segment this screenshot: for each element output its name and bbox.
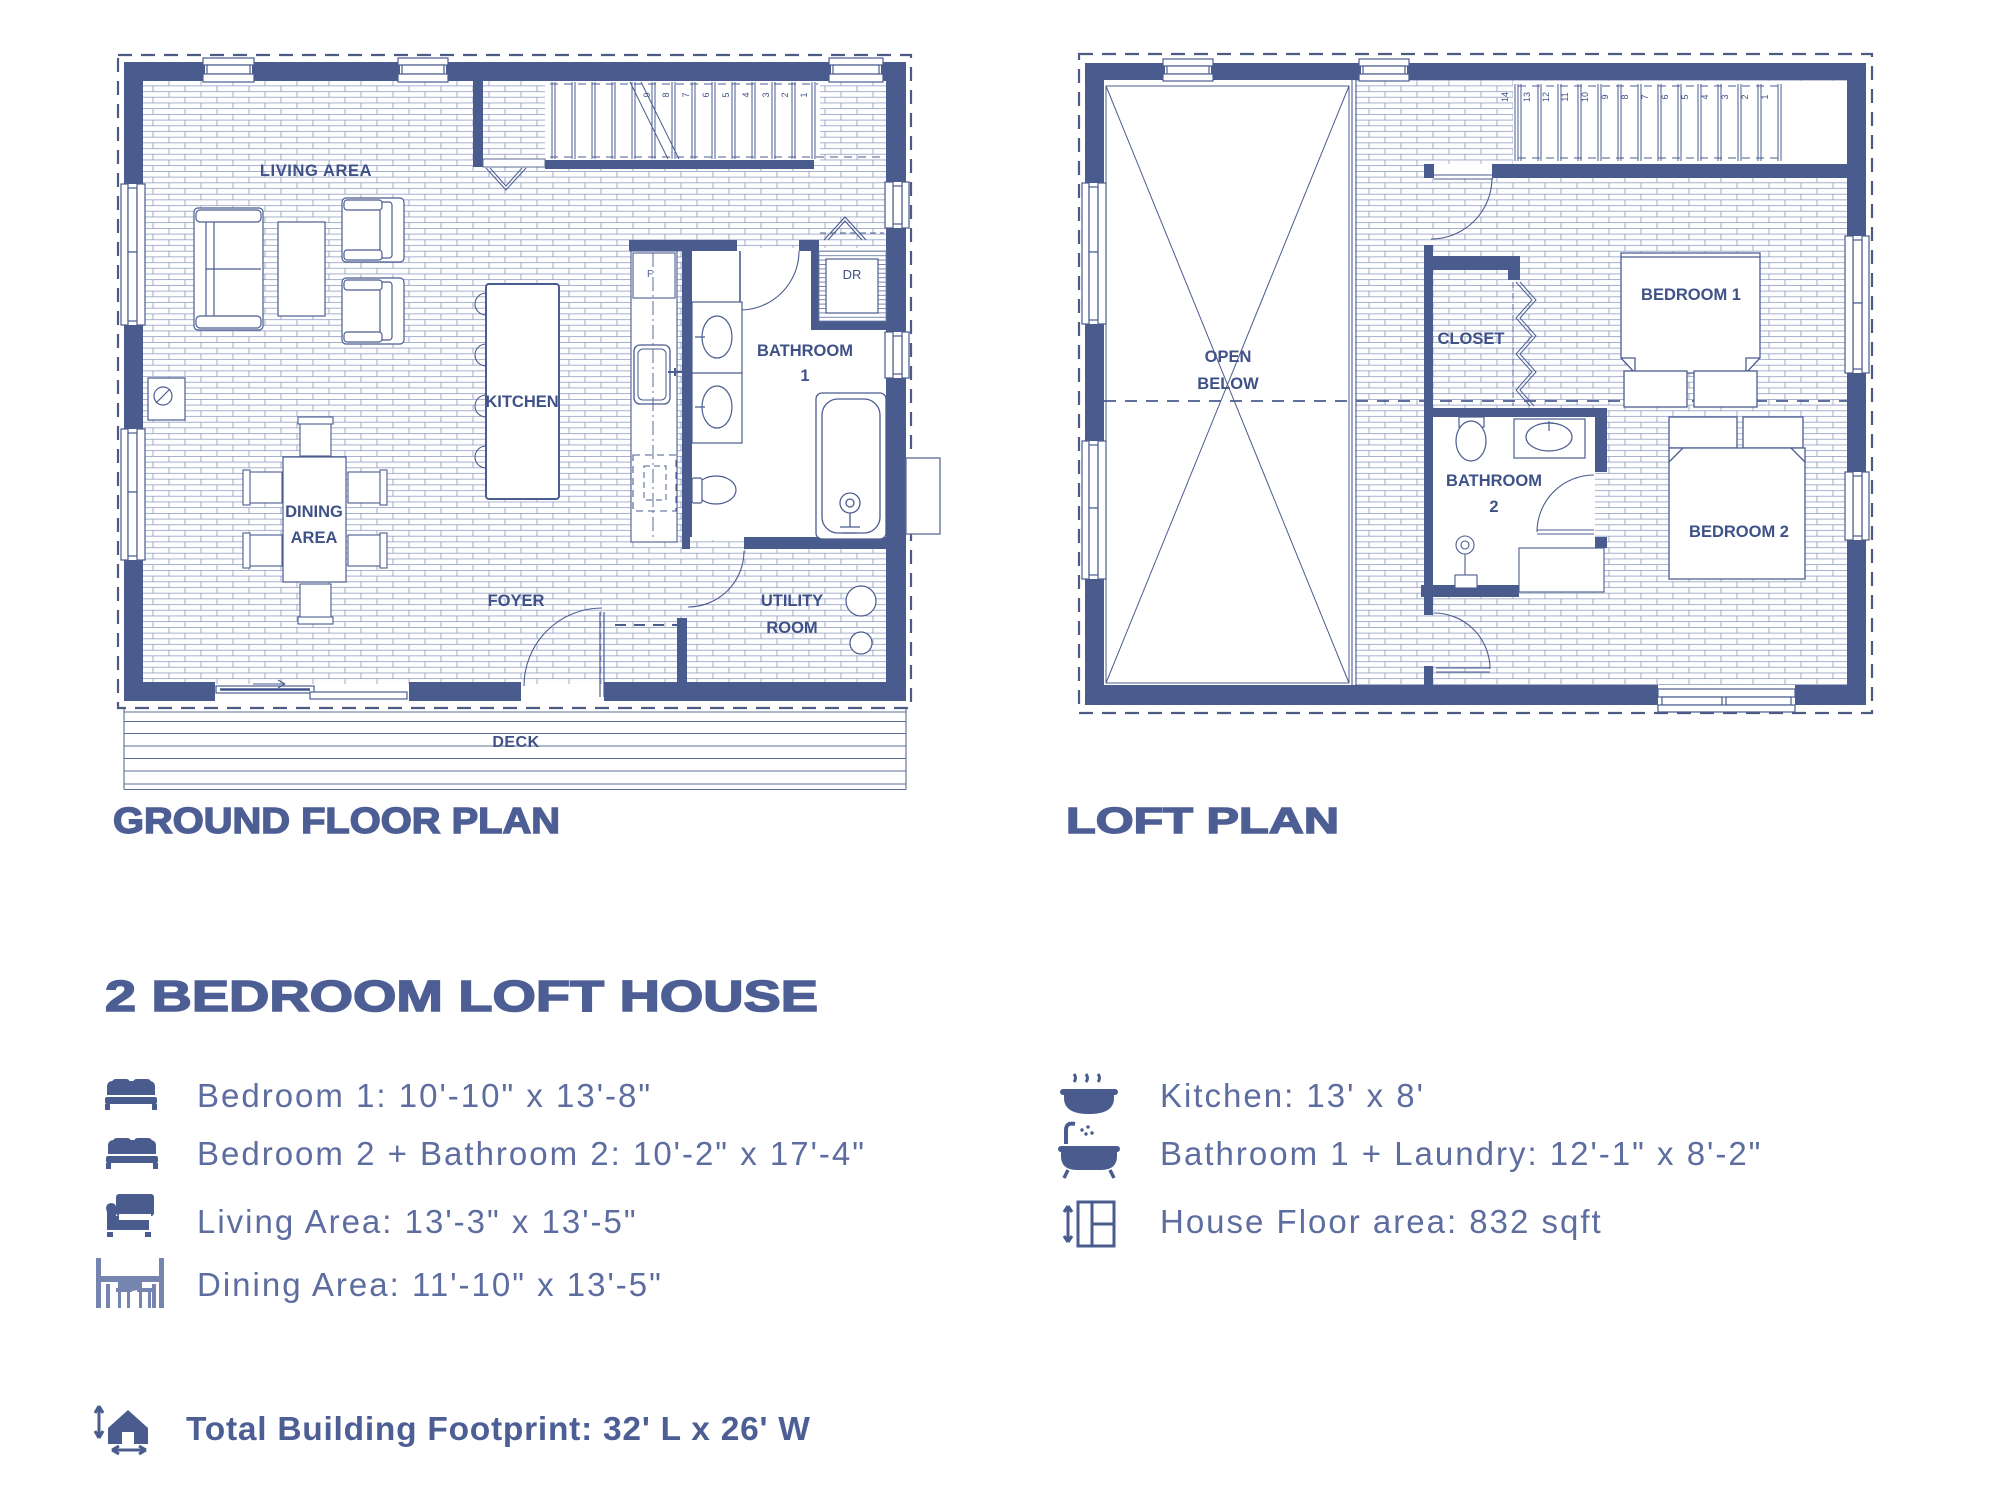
svg-text:House Floor area: 832 sqft: House Floor area: 832 sqft [1160, 1203, 1603, 1240]
svg-text:6: 6 [701, 92, 711, 97]
svg-text:DR: DR [843, 267, 862, 282]
svg-text:ROOM: ROOM [766, 619, 817, 637]
svg-text:AREA: AREA [291, 529, 338, 547]
svg-text:6: 6 [1660, 94, 1670, 99]
svg-text:Total Building Footprint: 32': Total Building Footprint: 32' L x 26' W [186, 1411, 811, 1448]
svg-text:BELOW: BELOW [1197, 375, 1259, 393]
svg-text:5: 5 [1680, 94, 1690, 99]
svg-text:Kitchen: 13' x 8': Kitchen: 13' x 8' [1160, 1077, 1425, 1114]
svg-text:Bedroom 2 + Bathroom 2: 10'-2": Bedroom 2 + Bathroom 2: 10'-2" x 17'-4" [197, 1135, 866, 1172]
svg-text:BEDROOM 1: BEDROOM 1 [1641, 286, 1741, 304]
svg-text:3: 3 [761, 92, 771, 97]
svg-text:BATHROOM: BATHROOM [757, 342, 853, 360]
svg-text:Dining Area: 11'-10" x 13'-5": Dining Area: 11'-10" x 13'-5" [197, 1266, 663, 1303]
svg-text:Bathroom 1 + Laundry: 12'-1" x: Bathroom 1 + Laundry: 12'-1" x 8'-2" [1160, 1135, 1762, 1172]
svg-text:1: 1 [1760, 94, 1770, 99]
svg-text:4: 4 [741, 92, 751, 97]
svg-text:13: 13 [1522, 92, 1532, 102]
svg-text:7: 7 [681, 92, 691, 97]
svg-text:DECK: DECK [492, 734, 539, 751]
svg-text:OPEN: OPEN [1205, 348, 1252, 366]
svg-text:Living Area: 13'-3" x 13'-5": Living Area: 13'-3" x 13'-5" [197, 1203, 638, 1240]
svg-text:12: 12 [1541, 92, 1551, 102]
svg-text:F: F [647, 269, 653, 280]
svg-text:GROUND FLOOR PLAN: GROUND FLOOR PLAN [113, 800, 560, 841]
svg-text:LIVING AREA: LIVING AREA [260, 162, 372, 180]
svg-text:2: 2 [780, 92, 790, 97]
svg-text:8: 8 [661, 92, 671, 97]
svg-text:4: 4 [1700, 94, 1710, 99]
svg-text:3: 3 [1720, 94, 1730, 99]
svg-text:2: 2 [1740, 94, 1750, 99]
svg-text:9: 9 [642, 92, 652, 97]
svg-text:1: 1 [800, 367, 809, 385]
svg-text:8: 8 [1620, 94, 1630, 99]
svg-text:KITCHEN: KITCHEN [485, 393, 558, 411]
svg-text:DINING: DINING [285, 503, 343, 521]
svg-text:10: 10 [1580, 92, 1590, 102]
svg-text:5: 5 [721, 92, 731, 97]
svg-text:UTILITY: UTILITY [761, 592, 823, 610]
svg-text:14: 14 [1500, 92, 1510, 102]
svg-text:2: 2 [1489, 498, 1498, 516]
svg-text:LOFT PLAN: LOFT PLAN [1066, 800, 1339, 841]
svg-text:11: 11 [1560, 92, 1570, 101]
svg-text:1: 1 [799, 92, 809, 97]
svg-text:7: 7 [1640, 94, 1650, 99]
svg-text:BEDROOM 2: BEDROOM 2 [1689, 523, 1789, 541]
svg-text:CLOSET: CLOSET [1438, 330, 1505, 348]
svg-text:Bedroom 1: 10'-10" x 13'-8": Bedroom 1: 10'-10" x 13'-8" [197, 1077, 652, 1114]
svg-text:FOYER: FOYER [488, 592, 545, 610]
svg-text:BATHROOM: BATHROOM [1446, 472, 1542, 490]
svg-text:2 BEDROOM LOFT HOUSE: 2 BEDROOM LOFT HOUSE [105, 972, 818, 1021]
svg-text:9: 9 [1600, 94, 1610, 99]
